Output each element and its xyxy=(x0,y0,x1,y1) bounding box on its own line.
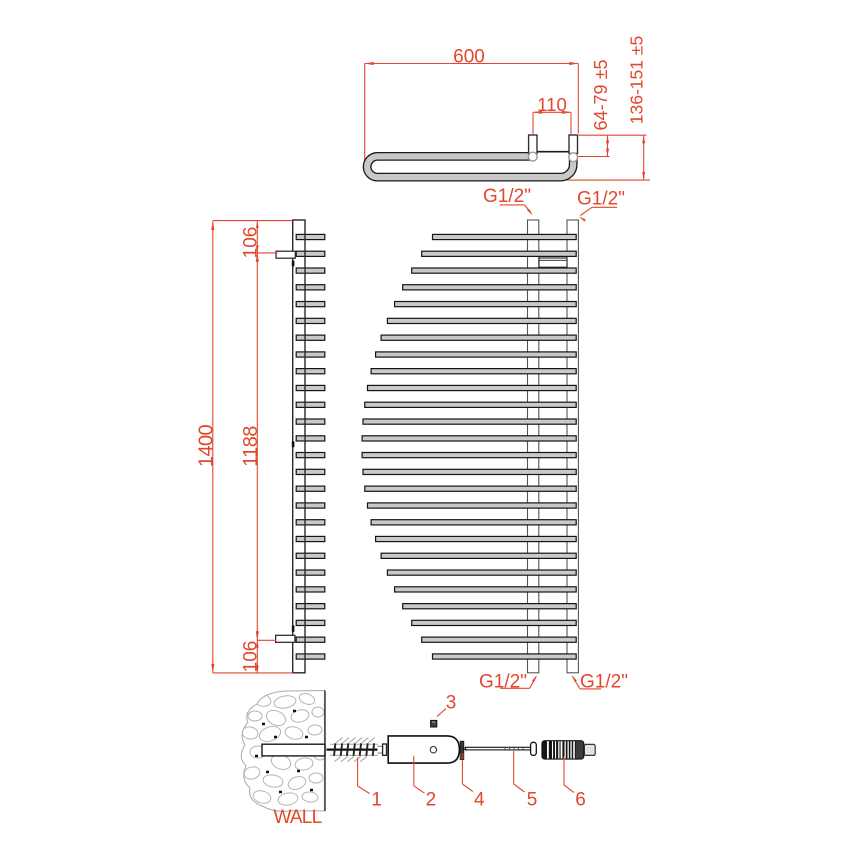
svg-text:3: 3 xyxy=(446,693,457,714)
svg-text:136-151 ±5: 136-151 ±5 xyxy=(626,36,646,124)
svg-text:1188: 1188 xyxy=(240,426,262,467)
svg-text:1400: 1400 xyxy=(195,424,217,467)
svg-text:WALL: WALL xyxy=(274,807,322,828)
svg-text:110: 110 xyxy=(537,94,567,115)
svg-text:5: 5 xyxy=(527,790,538,811)
svg-text:1: 1 xyxy=(371,790,382,811)
svg-text:64-79 ±5: 64-79 ±5 xyxy=(591,60,611,131)
svg-text:G1/2": G1/2" xyxy=(577,189,625,210)
svg-text:106: 106 xyxy=(241,227,262,259)
svg-text:600: 600 xyxy=(453,46,485,67)
svg-text:G1/2": G1/2" xyxy=(479,671,527,692)
svg-text:4: 4 xyxy=(474,790,485,811)
svg-text:106: 106 xyxy=(241,641,262,673)
svg-text:2: 2 xyxy=(426,790,437,811)
svg-text:G1/2": G1/2" xyxy=(483,186,531,207)
svg-text:6: 6 xyxy=(575,790,586,811)
